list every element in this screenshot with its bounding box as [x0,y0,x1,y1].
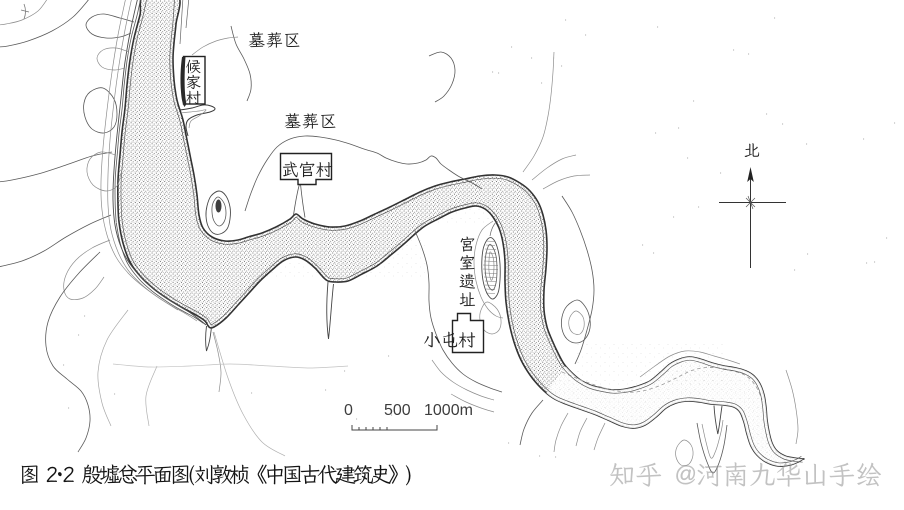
svg-text:1000m: 1000m [424,402,473,419]
svg-text:500: 500 [384,402,411,419]
svg-text:0: 0 [344,402,353,419]
